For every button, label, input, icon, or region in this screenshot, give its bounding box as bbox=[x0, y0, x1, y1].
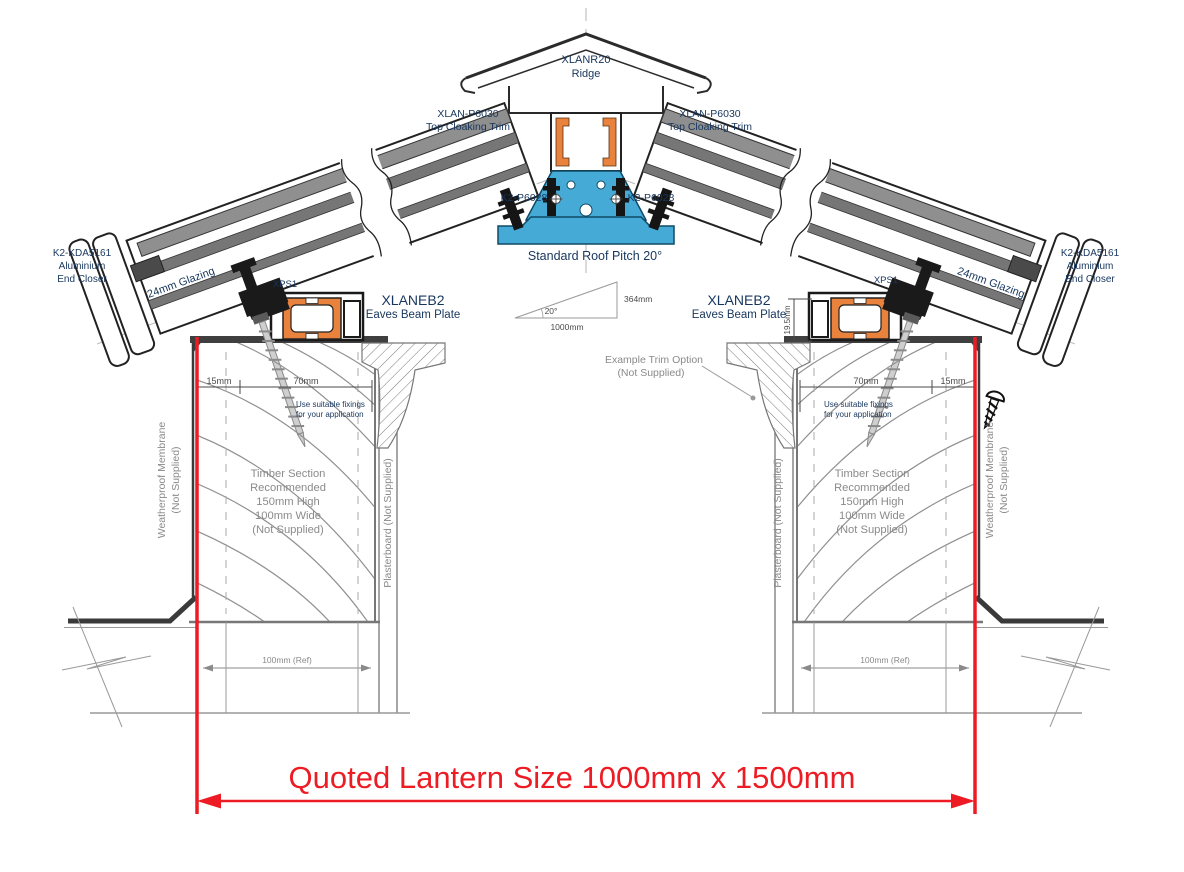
trim-leader-line bbox=[702, 366, 756, 401]
fixings-note-left-1: Use suitable fixings bbox=[296, 400, 365, 409]
top-cloaking-trim-right-name: Top Cloaking Trim bbox=[668, 121, 752, 133]
eaves-beam-right-code: XLANEB2 bbox=[707, 292, 770, 308]
fixings-note-right-1: Use suitable fixings bbox=[824, 400, 893, 409]
plasterboard-label-left: Plasterboard (Not Supplied) bbox=[382, 458, 394, 588]
xps1-right-label: XPS1 bbox=[874, 275, 898, 286]
timber-note-right-3: 150mm High bbox=[840, 496, 903, 508]
timber-note-right-5: (Not Supplied) bbox=[836, 524, 908, 536]
xps1-left-label: XPS1 bbox=[273, 279, 297, 290]
drawing-canvas: XLANR20 Ridge XLAN-P6030 Top Cloaking Tr… bbox=[0, 0, 1184, 872]
top-cloaking-trim-left-name: Top Cloaking Trim bbox=[426, 121, 510, 133]
beam-height-label: 19.5mm bbox=[783, 305, 792, 334]
timber-note-left-5: (Not Supplied) bbox=[252, 524, 324, 536]
break-symbol bbox=[62, 656, 151, 670]
ridge-code-label: XLANR20 bbox=[562, 54, 611, 66]
fixing-zone-dim-left: 70mm bbox=[293, 376, 318, 386]
lantern-section-drawing: XLANR20 Ridge XLAN-P6030 Top Cloaking Tr… bbox=[0, 0, 1184, 872]
ceiling-and-membrane bbox=[62, 343, 197, 727]
fixings-note-left-2: for your application bbox=[296, 410, 364, 419]
ref-dimension bbox=[203, 665, 371, 672]
end-closer-right-line1: Aluminium bbox=[1067, 261, 1114, 272]
weatherproof-membrane bbox=[68, 597, 196, 621]
example-trim-label-2: (Not Supplied) bbox=[617, 367, 684, 379]
edge-dim-right: 15mm bbox=[940, 376, 965, 386]
pitch-angle-label: 20° bbox=[545, 306, 558, 316]
fixing-zone-dim-right: 70mm bbox=[853, 376, 878, 386]
timber-note-right-1: Timber Section bbox=[835, 468, 910, 480]
plasterboard-label-right: Plasterboard (Not Supplied) bbox=[772, 458, 784, 588]
membrane-label-right-2: (Not Supplied) bbox=[998, 446, 1010, 513]
timber-note-left-1: Timber Section bbox=[251, 468, 326, 480]
pitch-base-label: 1000mm bbox=[550, 322, 583, 332]
pitch-rise-label: 364mm bbox=[624, 294, 652, 304]
timber-note-right-4: 100mm Wide bbox=[839, 510, 905, 522]
membrane-label-left-1: Weatherproof Membrane bbox=[156, 422, 168, 539]
pitch-title: Standard Roof Pitch 20° bbox=[528, 249, 662, 263]
top-cloaking-trim-left-code: XLAN-P6030 bbox=[437, 108, 498, 120]
quoted-size-label: Quoted Lantern Size 1000mm x 1500mm bbox=[289, 760, 856, 795]
timber-note-left-4: 100mm Wide bbox=[255, 510, 321, 522]
example-trim-label-1: Example Trim Option bbox=[605, 354, 703, 366]
fixings-note-right-2: for your application bbox=[824, 410, 892, 419]
end-closer-left-line1: Aluminium bbox=[59, 261, 106, 272]
top-cloaking-trim-right-code: XLAN-P6030 bbox=[679, 108, 740, 120]
end-closer-right-line2: End Closer bbox=[1065, 274, 1115, 285]
ref-width-label-left: 100mm (Ref) bbox=[262, 655, 312, 665]
eaves-beam-left-code: XLANEB2 bbox=[381, 292, 444, 308]
end-closer-right-code: K2-KDA5161 bbox=[1061, 248, 1120, 259]
eaves-beam-right-name: Eaves Beam Plate bbox=[692, 309, 787, 321]
end-closer-left-code: K2-KDA5161 bbox=[53, 248, 112, 259]
timber-note-left-3: 150mm High bbox=[256, 496, 319, 508]
ridge-bracket-right-label: K2-P6028 bbox=[628, 192, 675, 204]
ref-width-label-right: 100mm (Ref) bbox=[860, 655, 910, 665]
timber-note-right-2: Recommended bbox=[834, 482, 910, 494]
end-closer-left-line2: End Closer bbox=[57, 274, 107, 285]
eaves-beam-left-name: Eaves Beam Plate bbox=[366, 309, 461, 321]
membrane-label-right-1: Weatherproof Membrane bbox=[984, 422, 996, 539]
ridge-bracket-left-label: K2-P6028 bbox=[501, 192, 548, 204]
ridge-name-label: Ridge bbox=[572, 68, 601, 80]
timber-note-left-2: Recommended bbox=[250, 482, 326, 494]
pitch-triangle bbox=[515, 282, 617, 318]
edge-dim-left: 15mm bbox=[206, 376, 231, 386]
membrane-label-left-2: (Not Supplied) bbox=[170, 446, 182, 513]
